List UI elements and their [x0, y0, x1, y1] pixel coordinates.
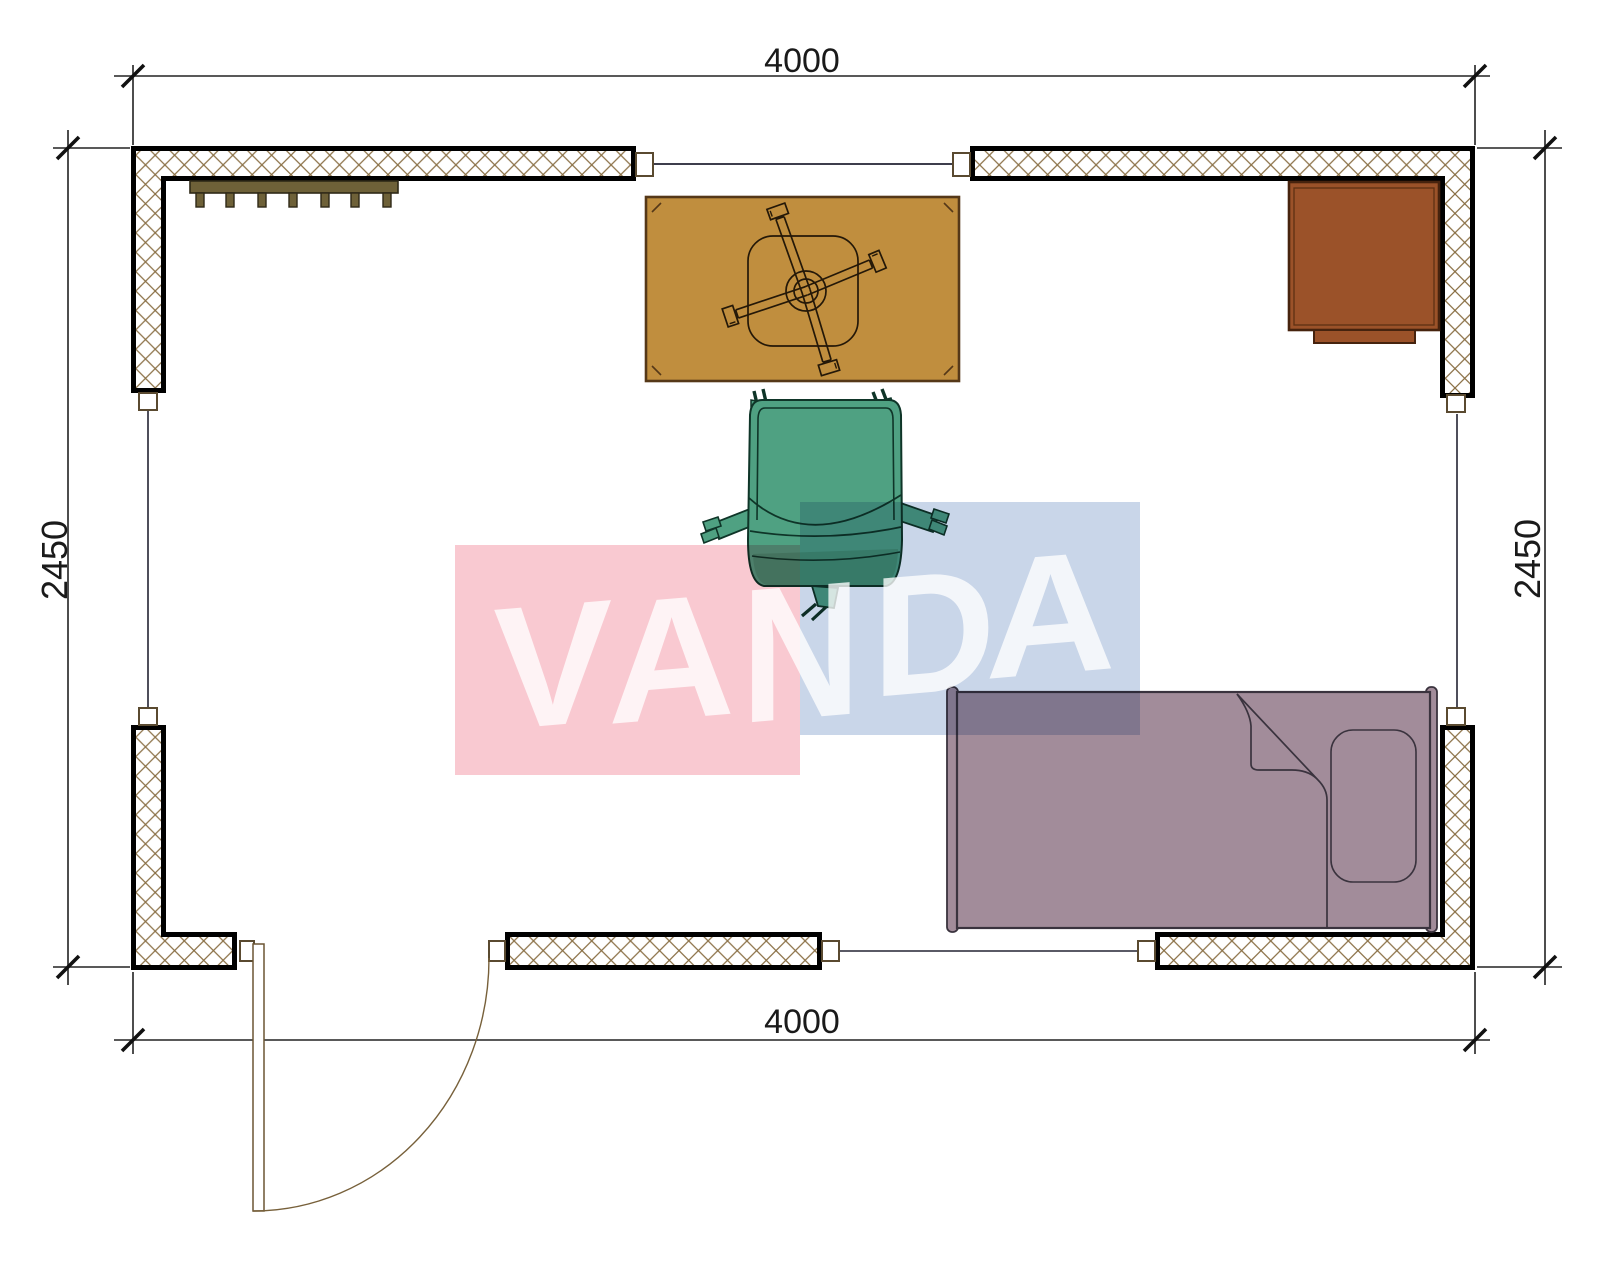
- svg-text:2450: 2450: [1507, 519, 1548, 599]
- svg-text:2450: 2450: [34, 520, 75, 600]
- svg-text:D: D: [872, 533, 996, 734]
- svg-text:A: A: [608, 556, 735, 761]
- svg-text:4000: 4000: [764, 42, 840, 80]
- svg-text:A: A: [985, 514, 1116, 716]
- svg-text:4000: 4000: [764, 1003, 840, 1041]
- svg-text:V: V: [493, 563, 612, 767]
- svg-text:N: N: [741, 541, 861, 765]
